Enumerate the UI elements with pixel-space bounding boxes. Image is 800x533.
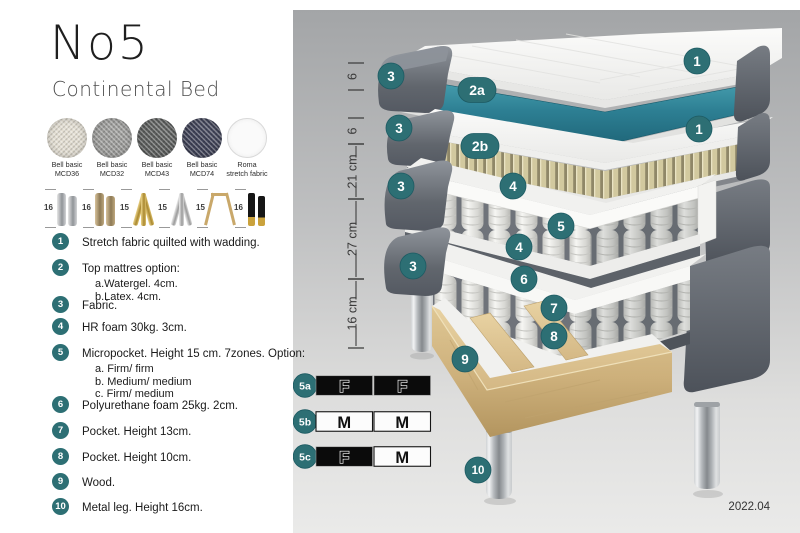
leg-height-label: 16: [234, 203, 243, 212]
leg-option: 16: [234, 186, 271, 232]
callout-number: 3: [409, 259, 417, 274]
part-sub-options: a. Firm/ firm b. Medium/ medium c. Firm/…: [95, 363, 305, 401]
fabric-swatch-label: Bell basic MCD36: [46, 161, 88, 178]
firmness-row-5b: 5bMM: [293, 410, 430, 434]
leg-shadow: [693, 490, 723, 498]
part-number-badge: 8: [52, 448, 69, 465]
page: 6621 cm27 cm16 cm: [0, 0, 800, 533]
part-description: Pocket. Height 13cm.: [82, 426, 191, 438]
fabric-swatch-label: Bell basic MCD32: [91, 161, 133, 178]
part-item: 4 HR foam 30kg. 3cm.: [52, 318, 187, 337]
part-item: 9 Wood.: [52, 473, 115, 492]
fabric-swatch-label: Bell basic MCD74: [181, 161, 223, 178]
callout-number: 1: [695, 122, 703, 137]
fabric-swatch-circle: [182, 118, 222, 158]
fabric-swatch-circle: [92, 118, 132, 158]
part-number-badge: 3: [52, 296, 69, 313]
right-leg-cap: [694, 402, 720, 407]
firmness-letter: F: [339, 378, 349, 396]
callout-10: 10: [465, 457, 491, 483]
part-description: Top mattres option:: [82, 263, 180, 275]
measure-label: 6: [345, 127, 359, 134]
page-title: No5: [50, 16, 150, 71]
firmness-letter: M: [395, 449, 409, 467]
leg-option: 15: [158, 186, 195, 232]
leg-icon: [56, 193, 80, 226]
part-body: Fabric.: [82, 296, 117, 315]
leg-height-label: 15: [120, 203, 129, 212]
fabric-swatch-circle: [227, 118, 267, 158]
fabric-swatch-list: Bell basic MCD36 Bell basic MCD32 Be: [46, 118, 268, 178]
fabric-swatch-item: Roma stretch fabric: [226, 118, 268, 178]
part-number-badge: 10: [52, 498, 69, 515]
leg-shadow: [410, 353, 434, 360]
fabric-swatch-label: Roma stretch fabric: [226, 161, 268, 178]
callout-2b: 2b: [461, 134, 499, 159]
part-item: 10 Metal leg. Height 16cm.: [52, 498, 203, 517]
firmness-row-id: 5b: [299, 416, 311, 428]
firmness-table: 5aFF5bMM5cFM: [293, 374, 430, 469]
fabric-swatch-item: Bell basic MCD32: [91, 118, 133, 178]
part-item: 5 Micropocket. Height 15 cm. 7zones. Opt…: [52, 344, 305, 401]
leg-height-label: 15: [158, 203, 167, 212]
part-body: Pocket. Height 10cm.: [82, 448, 191, 467]
callout-number: 10: [472, 465, 485, 477]
callout-number: 3: [397, 179, 405, 194]
leg-option: 16: [82, 186, 119, 232]
leg-icon: [208, 193, 232, 226]
callout-number: 9: [461, 352, 469, 367]
callout-number: 7: [550, 301, 558, 316]
part-description: Pocket. Height 10cm.: [82, 452, 191, 464]
measure-label: 16 cm: [345, 296, 359, 330]
leg-icon: [170, 193, 194, 226]
firmness-row-5c: 5cFM: [293, 445, 430, 469]
version-text: 2022.04: [728, 501, 770, 513]
leg-option: 15: [196, 186, 233, 232]
leg-option: 16: [44, 186, 81, 232]
measure-label: 21 cm: [345, 154, 359, 188]
part-description: Wood.: [82, 477, 115, 489]
part-body: HR foam 30kg. 3cm.: [82, 318, 187, 337]
callout-1: 1: [684, 48, 710, 74]
part-number-badge: 7: [52, 422, 69, 439]
callout-number: 5: [557, 219, 565, 234]
part-body: Wood.: [82, 473, 115, 492]
part-item: 1 Stretch fabric quilted with wadding.: [52, 233, 260, 252]
callout-number: 2a: [469, 82, 485, 98]
callout-number: 2b: [472, 138, 488, 154]
callout-number: 4: [515, 240, 523, 255]
firmness-letter: F: [339, 449, 349, 467]
firmness-row-id: 5c: [299, 451, 311, 463]
part-number-badge: 2: [52, 259, 69, 276]
fabric-swatch-item: Bell basic MCD74: [181, 118, 223, 178]
leg-options-list: 16 16 15: [44, 186, 271, 232]
part-number-badge: 6: [52, 396, 69, 413]
info-panel: No5 Continental Bed Bell basic MCD36 Bel…: [0, 0, 293, 533]
part-description: Micropocket. Height 15 cm. 7zones. Optio…: [82, 348, 305, 360]
callout-6: 6: [511, 266, 537, 292]
fabric-swatch-circle: [47, 118, 87, 158]
leg-icon: [132, 193, 156, 226]
callout-number: 4: [509, 179, 517, 194]
callout-3: 3: [400, 253, 426, 279]
part-description: Fabric.: [82, 300, 117, 312]
fabric-code: MCD43: [136, 170, 178, 179]
fabric-code: MCD32: [91, 170, 133, 179]
part-description: Stretch fabric quilted with wadding.: [82, 237, 260, 249]
firmness-row-5a: 5aFF: [293, 374, 430, 398]
part-body: Polyurethane foam 25kg. 2cm.: [82, 396, 238, 415]
part-number-badge: 1: [52, 233, 69, 250]
fabric-code: stretch fabric: [226, 170, 268, 179]
fabric-swatch-item: Bell basic MCD36: [46, 118, 88, 178]
part-body: Pocket. Height 13cm.: [82, 422, 191, 441]
callout-number: 3: [387, 69, 395, 84]
leg-icon: [246, 193, 270, 226]
callout-4: 4: [500, 173, 526, 199]
part-number-badge: 9: [52, 473, 69, 490]
callout-7: 7: [541, 295, 567, 321]
part-item: 7 Pocket. Height 13cm.: [52, 422, 191, 441]
callout-number: 8: [550, 329, 558, 344]
leg-icon: [94, 193, 118, 226]
part-body: Stretch fabric quilted with wadding.: [82, 233, 260, 252]
fabric-code: MCD36: [46, 170, 88, 179]
right-leg: [694, 404, 720, 489]
firmness-letter: M: [337, 414, 351, 432]
callout-3: 3: [388, 173, 414, 199]
callout-8: 8: [541, 323, 567, 349]
part-item: 6 Polyurethane foam 25kg. 2cm.: [52, 396, 238, 415]
part-description: Metal leg. Height 16cm.: [82, 502, 203, 514]
part-body: Metal leg. Height 16cm.: [82, 498, 203, 517]
pocket27-right-fabric: [684, 246, 770, 392]
part-item: 3 Fabric.: [52, 296, 117, 315]
part-number-badge: 4: [52, 318, 69, 335]
callout-9: 9: [452, 346, 478, 372]
callout-3: 3: [386, 115, 412, 141]
callout-number: 6: [520, 272, 528, 287]
leg-height-label: 16: [82, 203, 91, 212]
measure-label: 6: [345, 73, 359, 80]
fabric-swatch-circle: [137, 118, 177, 158]
leg-height-label: 16: [44, 203, 53, 212]
part-item: 8 Pocket. Height 10cm.: [52, 448, 191, 467]
firmness-letter: F: [397, 378, 407, 396]
callout-3: 3: [378, 63, 404, 89]
measure-label: 27 cm: [345, 222, 359, 256]
callout-number: 1: [693, 54, 701, 69]
callout-2a: 2a: [458, 78, 496, 103]
callout-4: 4: [506, 234, 532, 260]
page-subtitle: Continental Bed: [52, 77, 220, 101]
part-description: Polyurethane foam 25kg. 2cm.: [82, 400, 238, 412]
pocket21-corner-post: [698, 180, 716, 245]
back-left-leg: [411, 286, 433, 352]
part-description: HR foam 30kg. 3cm.: [82, 322, 187, 334]
part-body: Micropocket. Height 15 cm. 7zones. Optio…: [82, 344, 305, 401]
fabric-code: MCD74: [181, 170, 223, 179]
callout-5: 5: [548, 213, 574, 239]
fabric-swatch-item: Bell basic MCD43: [136, 118, 178, 178]
leg-height-label: 15: [196, 203, 205, 212]
fabric-swatch-label: Bell basic MCD43: [136, 161, 178, 178]
part-number-badge: 5: [52, 344, 69, 361]
callout-number: 3: [395, 121, 403, 136]
leg-option: 15: [120, 186, 157, 232]
callout-1: 1: [686, 116, 712, 142]
firmness-letter: M: [395, 414, 409, 432]
